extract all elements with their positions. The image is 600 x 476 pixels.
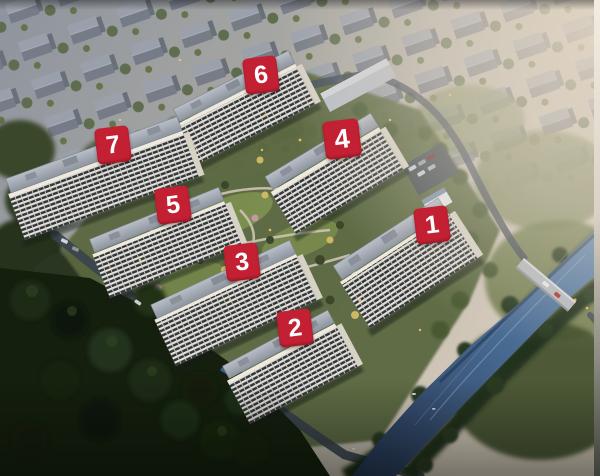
building-marker-4[interactable]: 4 <box>322 118 362 160</box>
right-edge-strip <box>594 0 600 476</box>
building-marker-4-label: 4 <box>333 125 351 154</box>
building-marker-3-label: 3 <box>234 249 251 276</box>
building-marker-7[interactable]: 7 <box>94 125 132 165</box>
building-marker-6[interactable]: 6 <box>242 55 280 95</box>
building-marker-5-label: 5 <box>165 192 182 219</box>
aerial-site-plan: 1 2 3 4 5 6 7 <box>0 0 600 476</box>
building-marker-1[interactable]: 1 <box>413 205 451 245</box>
site-rendering <box>0 0 600 476</box>
building-marker-3[interactable]: 3 <box>223 242 261 282</box>
building-marker-1-label: 1 <box>424 212 441 239</box>
building-marker-2-label: 2 <box>287 315 304 342</box>
building-marker-2[interactable]: 2 <box>276 308 314 348</box>
top-vignette <box>0 0 600 10</box>
bottom-vignette <box>0 380 600 476</box>
building-marker-6-label: 6 <box>253 62 270 89</box>
building-marker-7-label: 7 <box>105 132 122 159</box>
building-marker-5[interactable]: 5 <box>154 185 192 225</box>
